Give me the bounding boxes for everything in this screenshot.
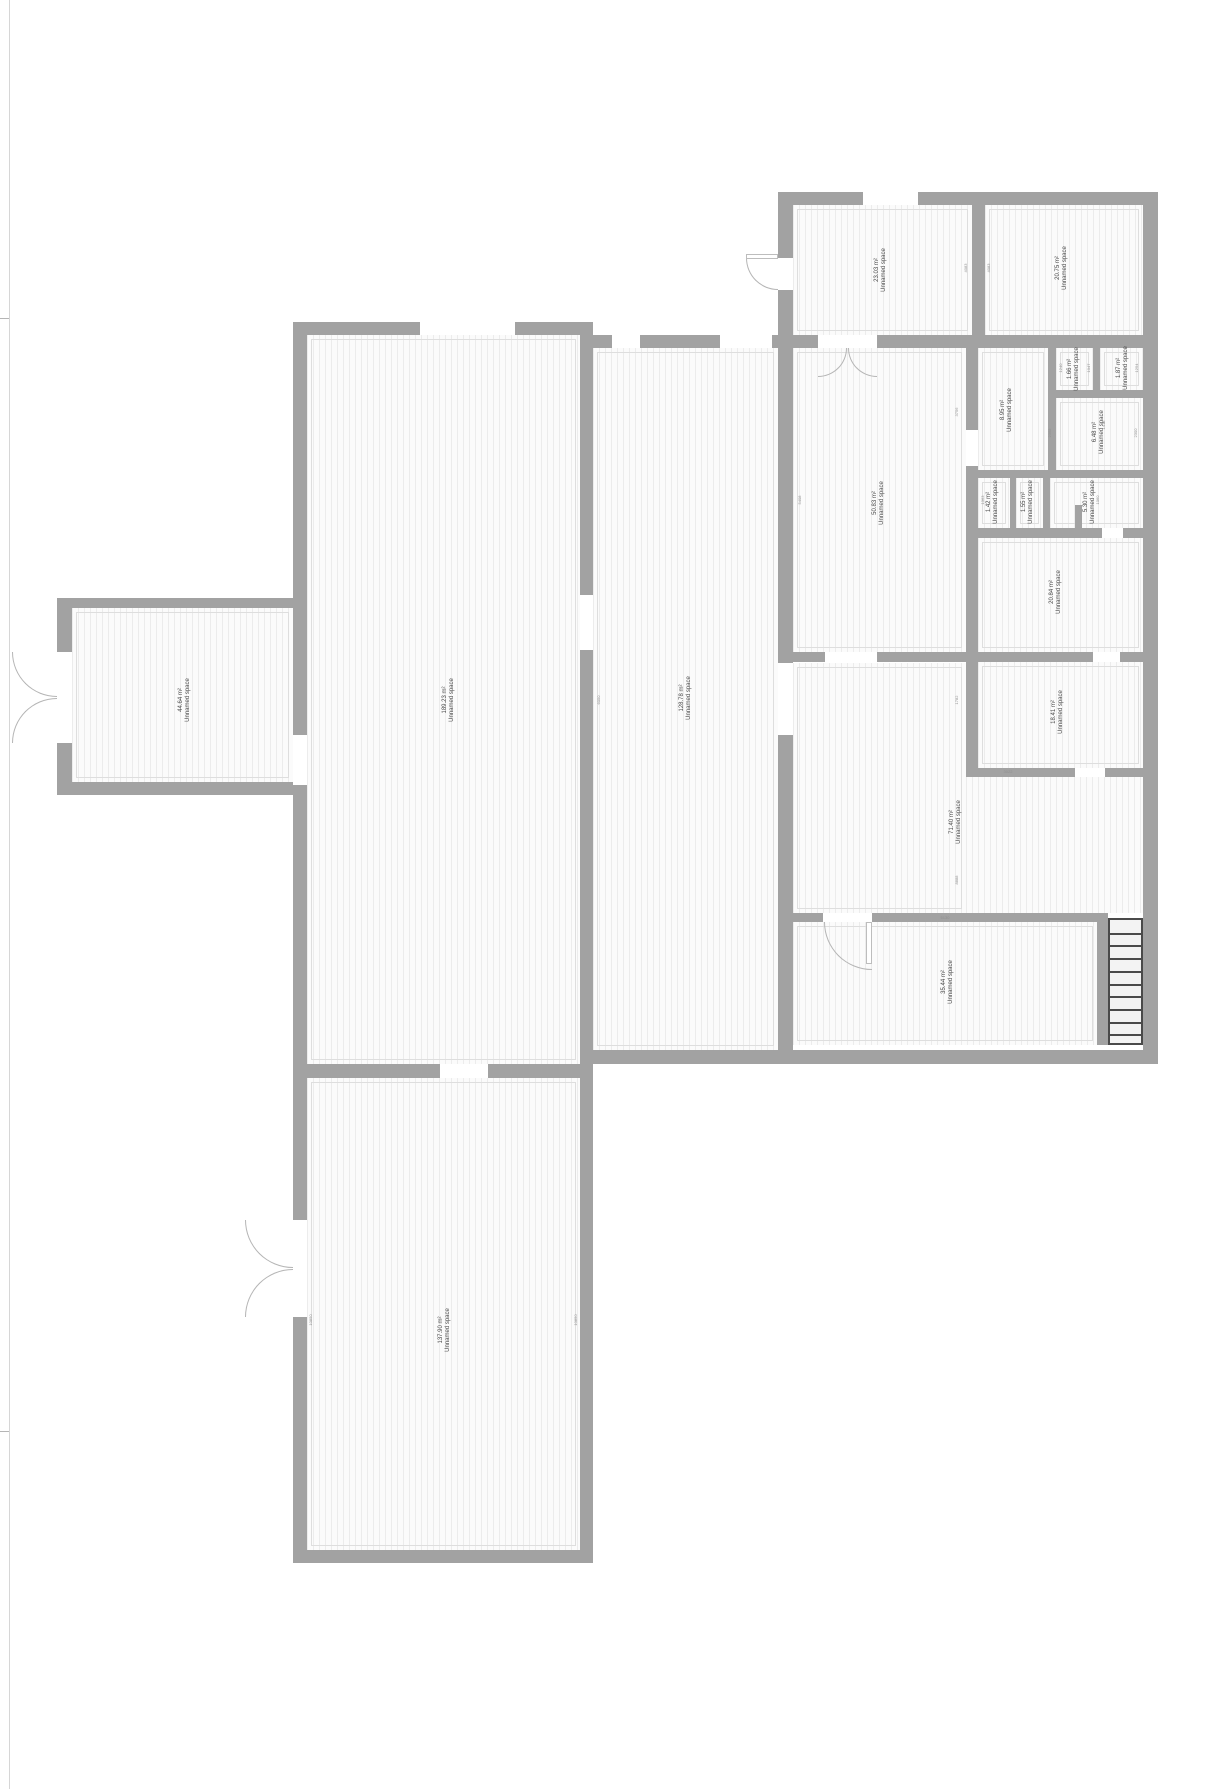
wall-opening (823, 913, 872, 922)
dimension-label: 1060 (1096, 496, 1100, 505)
dimension-label: 10850 (309, 1314, 313, 1325)
wall-opening (293, 1220, 307, 1317)
door-swing-arc (245, 1220, 293, 1268)
room-name-label: Unnamed space (445, 1308, 452, 1352)
room-label: 71.40 m²Unnamed space (949, 800, 963, 844)
wall-opening (818, 335, 877, 348)
wall-segment (1075, 505, 1082, 528)
room-boundary (797, 667, 962, 909)
dimension-label: 4083 (964, 264, 968, 273)
wall-opening (580, 595, 593, 650)
wall-opening (720, 335, 772, 348)
room-area-label: 71.40 m² (949, 800, 956, 844)
room-label: 1.55 m²Unnamed space (1021, 480, 1035, 524)
dimension-label: 4083 (987, 264, 991, 273)
room-label: 8.95 m²Unnamed space (1000, 388, 1014, 432)
stair-tread (1110, 1022, 1141, 1024)
room-area-label: 1.42 m² (986, 480, 993, 524)
room-area-label: 1.66 m² (1067, 347, 1074, 391)
room-area-label: 189.23 m² (442, 678, 449, 722)
door-swing-arc (746, 258, 778, 290)
room-area-label: 137.90 m² (438, 1308, 445, 1352)
wall-segment (1093, 348, 1100, 390)
wall-segment (1043, 478, 1050, 528)
room-area-label: 35.44 m² (941, 960, 948, 1004)
room-label: 44.64 m²Unnamed space (178, 678, 192, 722)
wall-segment (966, 470, 1143, 478)
stair-tread (1110, 945, 1141, 947)
stair-tread (1110, 958, 1141, 960)
wall-segment (972, 205, 985, 348)
room-name-label: Unnamed space (1123, 346, 1130, 390)
wall-opening (1102, 528, 1123, 538)
dimension-label: 1240 (1059, 364, 1063, 373)
wall-opening (1075, 768, 1105, 777)
wall-segment (778, 192, 1158, 205)
door-leaf (746, 254, 778, 259)
wall-segment (1010, 478, 1016, 528)
stair-tread (1110, 1034, 1141, 1036)
room-name-label: Unnamed space (449, 678, 456, 722)
wall-segment (593, 1050, 1158, 1064)
room-label: 20.75 m²Unnamed space (1055, 246, 1069, 290)
dimension-label: 1047 (1087, 364, 1091, 373)
wall-opening (778, 258, 793, 290)
room-name-label: Unnamed space (881, 248, 888, 292)
room-label: 1.87 m²Unnamed space (1116, 346, 1130, 390)
wall-opening (57, 652, 72, 743)
room-area-label: 1.55 m² (1021, 480, 1028, 524)
room-area-label: 128.78 m² (679, 676, 686, 720)
room-label: 1.42 m²Unnamed space (986, 480, 1000, 524)
wall-opening (778, 663, 793, 735)
wall-segment (1048, 348, 1056, 470)
wall-segment (57, 598, 307, 608)
wall-opening (420, 322, 515, 335)
dimension-label: 8888 (955, 876, 959, 885)
room-name-label: Unnamed space (1062, 246, 1069, 290)
room-name-label: Unnamed space (1028, 480, 1035, 524)
dimension-label: 2368 (1048, 429, 1052, 438)
wall-segment (293, 322, 307, 1078)
wall-opening (966, 430, 978, 466)
door-leaf (866, 922, 872, 964)
room-area-label: 23.03 m² (874, 248, 881, 292)
floor-plan: 23.03 m²Unnamed space20.75 m²Unnamed spa… (0, 0, 1206, 1789)
stair-tread (1110, 984, 1141, 986)
wall-segment (293, 1078, 307, 1563)
room-name-label: Unnamed space (993, 480, 1000, 524)
room-area-label: 50.83 m² (872, 481, 879, 525)
room-label: 189.23 m²Unnamed space (442, 678, 456, 722)
wall-segment (966, 348, 978, 768)
dimension-label: 1413 (1102, 421, 1106, 430)
dimension-label: 5130 (941, 916, 950, 920)
room-label: 20.84 m²Unnamed space (1049, 570, 1063, 614)
room-name-label: Unnamed space (185, 678, 192, 722)
room-71-40-extension[interactable] (966, 777, 1143, 913)
dimension-label: 10850 (574, 1314, 578, 1325)
room-name-label: Unnamed space (686, 676, 693, 720)
dimension-label: 1782 (955, 696, 959, 705)
wall-segment (580, 322, 593, 1064)
wall-opening (863, 192, 918, 205)
page-border-tick (0, 1431, 9, 1432)
stair-tread (1110, 1009, 1141, 1011)
staircase (1108, 918, 1143, 1045)
room-name-label: Unnamed space (956, 800, 963, 844)
room-label: 23.03 m²Unnamed space (874, 248, 888, 292)
wall-segment (1097, 913, 1108, 1045)
room-area-label: 6.48 m² (1092, 410, 1099, 454)
room-area-label: 18.41 m² (1051, 690, 1058, 734)
stair-tread (1110, 971, 1141, 973)
door-swing-arc (245, 1269, 293, 1317)
wall-segment (1048, 390, 1143, 398)
stair-tread (1110, 933, 1141, 935)
stair-tread (1110, 996, 1141, 998)
page-border-tick (0, 318, 9, 319)
room-area-label: 44.64 m² (178, 678, 185, 722)
door-swing-arc (12, 698, 57, 743)
room-area-label: 1.87 m² (1116, 346, 1123, 390)
room-label: 18.41 m²Unnamed space (1051, 690, 1065, 734)
room-label: 6.48 m²Unnamed space (1092, 410, 1106, 454)
room-area-label: 5.30 m² (1083, 480, 1090, 524)
door-swing-arc (12, 652, 57, 697)
room-label: 137.90 m²Unnamed space (438, 1308, 452, 1352)
wall-segment (1143, 192, 1158, 1064)
room-name-label: Unnamed space (1099, 410, 1106, 454)
room-area-label: 20.84 m² (1049, 570, 1056, 614)
room-name-label: Unnamed space (1058, 690, 1065, 734)
wall-segment (966, 768, 1143, 777)
dimension-label: 2300 (1134, 429, 1138, 438)
wall-opening (440, 1064, 488, 1078)
room-label: 50.83 m²Unnamed space (872, 481, 886, 525)
dimension-label: 1363 (981, 496, 985, 505)
room-name-label: Unnamed space (1056, 570, 1063, 614)
dimension-label: 3022 (1004, 770, 1013, 774)
wall-segment (57, 782, 307, 795)
wall-segment (580, 1078, 593, 1563)
wall-opening (293, 735, 307, 785)
wall-opening (1093, 652, 1120, 662)
dimension-label: 1254 (1135, 364, 1139, 373)
wall-segment (778, 192, 793, 1064)
dimension-label: 5408 (798, 496, 802, 505)
room-label: 35.44 m²Unnamed space (941, 960, 955, 1004)
room-label: 1.66 m²Unnamed space (1067, 347, 1081, 391)
room-area-label: 20.75 m² (1055, 246, 1062, 290)
wall-opening (612, 335, 640, 348)
room-name-label: Unnamed space (948, 960, 955, 1004)
wall-segment (293, 1550, 593, 1563)
wall-opening (825, 652, 877, 662)
dimension-label: 6050 (597, 696, 601, 705)
room-label: 128.78 m²Unnamed space (679, 676, 693, 720)
dimension-label: 3756 (955, 408, 959, 417)
room-name-label: Unnamed space (879, 481, 886, 525)
room-name-label: Unnamed space (1007, 388, 1014, 432)
room-area-label: 8.95 m² (1000, 388, 1007, 432)
page-border-line (9, 0, 10, 1789)
room-name-label: Unnamed space (1074, 347, 1081, 391)
room-71-40[interactable] (793, 663, 966, 913)
